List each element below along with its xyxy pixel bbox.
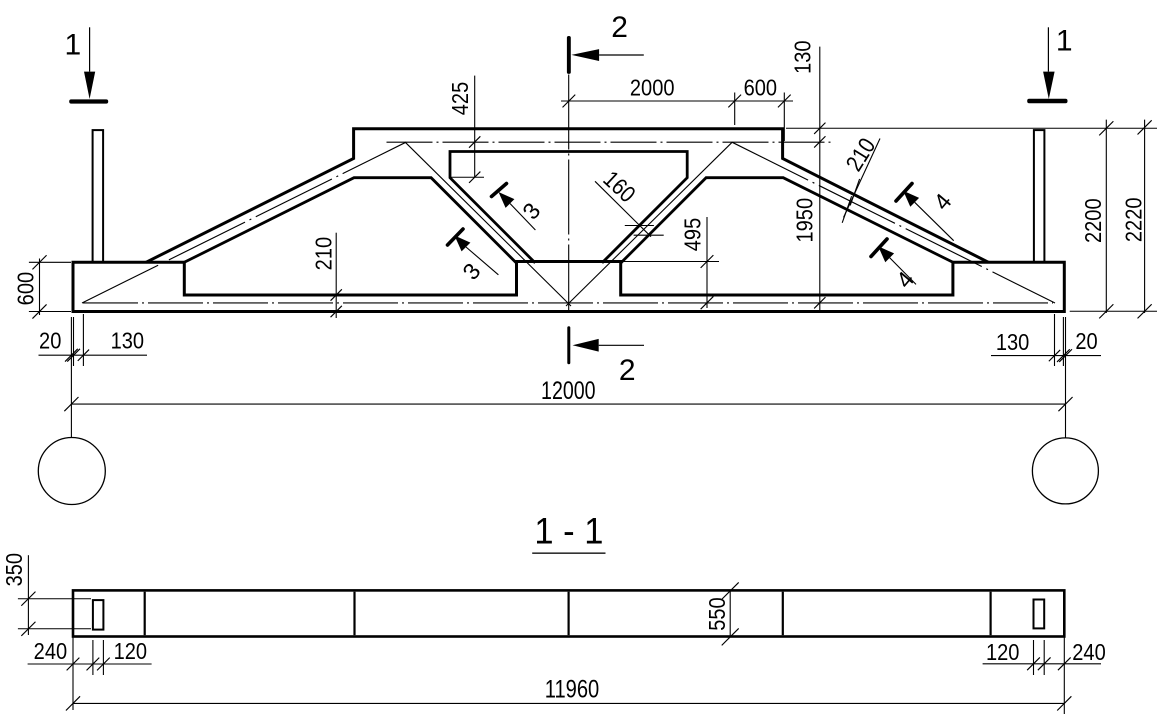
svg-text:130: 130 — [111, 328, 144, 354]
svg-text:2: 2 — [619, 354, 636, 387]
svg-text:20: 20 — [1075, 328, 1097, 354]
svg-text:120: 120 — [114, 638, 147, 664]
svg-text:2220: 2220 — [1120, 197, 1146, 242]
svg-text:600: 600 — [744, 75, 777, 101]
svg-text:2: 2 — [611, 11, 628, 44]
svg-text:1950: 1950 — [791, 198, 817, 243]
svg-text:550: 550 — [704, 597, 730, 630]
svg-text:130: 130 — [789, 40, 815, 73]
svg-text:350: 350 — [1, 553, 27, 586]
svg-text:120: 120 — [986, 639, 1019, 665]
svg-text:11960: 11960 — [545, 677, 600, 704]
svg-text:425: 425 — [447, 82, 473, 115]
svg-text:1: 1 — [1056, 24, 1073, 57]
svg-text:2200: 2200 — [1080, 198, 1106, 243]
svg-text:1: 1 — [64, 29, 81, 62]
svg-text:210: 210 — [311, 237, 337, 270]
svg-text:240: 240 — [1072, 639, 1105, 665]
svg-text:240: 240 — [34, 638, 67, 664]
svg-text:495: 495 — [680, 218, 706, 251]
svg-text:2000: 2000 — [630, 75, 675, 101]
svg-text:12000: 12000 — [541, 378, 596, 405]
svg-text:600: 600 — [12, 272, 38, 305]
svg-text:130: 130 — [996, 329, 1029, 355]
svg-text:20: 20 — [39, 328, 61, 354]
svg-text:1 - 1: 1 - 1 — [534, 510, 603, 551]
